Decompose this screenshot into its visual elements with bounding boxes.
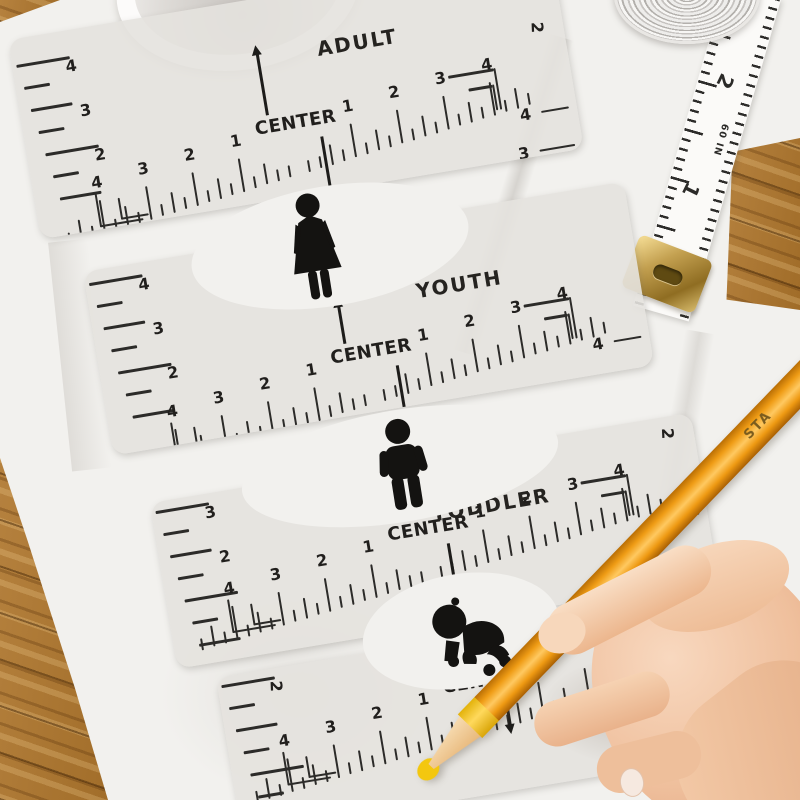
scale-number: 2 bbox=[462, 311, 476, 332]
tick-mark bbox=[554, 521, 560, 542]
tick-mark bbox=[528, 516, 536, 550]
tick-mark bbox=[371, 755, 375, 767]
tick-mark bbox=[52, 171, 78, 178]
product-photo-tshirt-ruler-scene: 2 60 IN 1 bbox=[0, 0, 800, 800]
tick-mark bbox=[328, 144, 334, 165]
tick-mark bbox=[349, 124, 357, 158]
clip-slot bbox=[651, 262, 684, 287]
tick-mark bbox=[170, 548, 212, 557]
scale-number: 2 bbox=[258, 373, 272, 394]
tick-mark bbox=[193, 426, 199, 448]
tick-mark bbox=[613, 513, 617, 525]
scale-number: 2 bbox=[315, 550, 329, 571]
tick-mark bbox=[305, 412, 309, 424]
tick-mark bbox=[267, 401, 275, 435]
tick-mark bbox=[457, 114, 461, 126]
tick-mark bbox=[434, 121, 438, 133]
tick-mark bbox=[191, 172, 199, 206]
scale-number: 3 bbox=[324, 716, 338, 737]
tick-mark bbox=[229, 703, 255, 710]
tick-mark bbox=[579, 329, 583, 341]
tick-mark bbox=[199, 435, 205, 456]
tick-mark bbox=[404, 736, 410, 757]
scale-number: 2 bbox=[93, 144, 107, 165]
scale-number: 3 bbox=[433, 68, 447, 89]
tick-mark bbox=[529, 707, 533, 719]
tick-mark bbox=[103, 320, 145, 329]
tick-mark bbox=[89, 274, 143, 285]
tick-mark bbox=[404, 373, 410, 394]
tick-mark bbox=[189, 447, 193, 455]
tick-mark bbox=[303, 598, 309, 619]
scale-number: 2 bbox=[266, 680, 285, 692]
tick-mark bbox=[590, 520, 594, 532]
scale-number: 2 bbox=[658, 428, 677, 440]
tick-mark bbox=[23, 83, 49, 90]
tick-mark bbox=[482, 530, 490, 564]
tick-mark bbox=[206, 190, 210, 202]
tick-mark bbox=[45, 144, 99, 155]
tick-mark bbox=[236, 433, 240, 445]
scale-number: 3 bbox=[211, 387, 225, 408]
tick-mark bbox=[316, 603, 320, 615]
tick-mark bbox=[170, 192, 176, 213]
tick-mark bbox=[250, 765, 304, 776]
wood-table-left bbox=[0, 440, 120, 800]
tick-mark bbox=[250, 603, 256, 625]
center-label: CENTER bbox=[329, 334, 413, 368]
tick-mark bbox=[155, 502, 209, 513]
tick-mark bbox=[293, 610, 297, 622]
tick-mark bbox=[38, 127, 64, 134]
scale-number: 4 bbox=[277, 731, 291, 752]
scale-number: 2 bbox=[370, 702, 384, 723]
tick-mark bbox=[288, 166, 292, 178]
scale-number: 3 bbox=[268, 564, 282, 585]
scale-number: 3 bbox=[136, 158, 150, 179]
tick-mark bbox=[349, 584, 355, 605]
tick-mark bbox=[612, 373, 648, 381]
scale-number: 1 bbox=[361, 536, 375, 557]
tick-mark bbox=[305, 756, 311, 778]
tick-mark bbox=[411, 128, 415, 140]
tick-mark bbox=[396, 110, 404, 144]
tick-mark bbox=[192, 617, 218, 624]
ruler-size-label: ADULT bbox=[315, 24, 399, 61]
tick-mark bbox=[91, 225, 95, 237]
tick-mark bbox=[636, 506, 640, 518]
tick-mark bbox=[388, 135, 392, 147]
center-up-arrow-icon bbox=[337, 306, 346, 344]
scale-number: 3 bbox=[79, 100, 93, 121]
tick-mark bbox=[539, 144, 575, 152]
center-up-arrow-icon bbox=[256, 54, 269, 116]
tick-mark bbox=[614, 335, 642, 342]
scale-number: 2 bbox=[387, 82, 401, 103]
tick-mark bbox=[533, 343, 537, 355]
tick-mark bbox=[567, 527, 571, 539]
tick-mark bbox=[351, 398, 355, 410]
tick-mark bbox=[370, 564, 378, 598]
tick-mark bbox=[125, 389, 151, 396]
tick-mark bbox=[394, 748, 398, 760]
scale-number: 1 bbox=[416, 325, 430, 346]
tick-mark bbox=[527, 93, 531, 105]
tick-mark bbox=[602, 322, 606, 334]
scale-number: 1 bbox=[229, 130, 243, 151]
tick-mark bbox=[230, 183, 234, 195]
tick-mark bbox=[323, 578, 331, 612]
tick-mark bbox=[486, 357, 490, 369]
tick-mark bbox=[450, 359, 456, 380]
scale-number: 3 bbox=[151, 318, 165, 339]
tick-mark bbox=[362, 589, 366, 601]
wood-table-right bbox=[725, 138, 800, 310]
tick-mark bbox=[237, 158, 245, 192]
tick-mark bbox=[543, 330, 549, 351]
tick-mark bbox=[318, 156, 322, 168]
tick-mark bbox=[282, 419, 286, 431]
tick-mark bbox=[338, 393, 344, 414]
tick-mark bbox=[541, 106, 569, 113]
tick-mark bbox=[183, 197, 187, 209]
tick-mark bbox=[497, 548, 501, 560]
tick-mark bbox=[507, 535, 513, 556]
tick-mark bbox=[199, 637, 241, 646]
tick-mark bbox=[243, 747, 269, 754]
tick-mark bbox=[375, 130, 381, 151]
scale-number: 2 bbox=[218, 546, 232, 567]
scale-number: 1 bbox=[341, 96, 355, 117]
tick-mark bbox=[68, 232, 72, 239]
tick-mark bbox=[497, 344, 503, 365]
scale-number: 3 bbox=[509, 297, 523, 318]
tick-mark bbox=[118, 363, 172, 374]
tick-mark bbox=[328, 405, 332, 417]
tick-mark bbox=[480, 107, 484, 119]
tick-mark bbox=[467, 102, 473, 123]
tick-mark bbox=[118, 197, 124, 219]
scale-number: 3 bbox=[517, 143, 531, 164]
tick-mark bbox=[461, 550, 467, 571]
tick-mark bbox=[292, 407, 298, 428]
tick-mark bbox=[276, 169, 280, 181]
tick-mark bbox=[313, 387, 321, 421]
scale-number: 4 bbox=[518, 104, 532, 125]
tick-mark bbox=[471, 339, 479, 373]
tick-mark bbox=[342, 149, 346, 161]
tick-mark bbox=[111, 345, 137, 352]
tick-mark bbox=[217, 178, 223, 199]
tick-mark bbox=[269, 617, 273, 629]
tick-mark bbox=[307, 160, 311, 172]
tick-mark bbox=[417, 378, 421, 390]
tick-mark bbox=[394, 385, 398, 397]
tick-mark bbox=[163, 529, 189, 536]
tick-mark bbox=[440, 371, 444, 383]
tick-mark bbox=[516, 702, 522, 723]
scale-number: 4 bbox=[222, 578, 236, 599]
tick-mark bbox=[463, 364, 467, 376]
scale-number: 4 bbox=[165, 401, 179, 422]
tick-mark bbox=[325, 770, 329, 782]
tick-mark bbox=[379, 730, 387, 764]
tick-mark bbox=[421, 116, 427, 137]
scale-number: 3 bbox=[203, 502, 217, 523]
tick-mark bbox=[212, 440, 216, 452]
scale-number: 2 bbox=[182, 144, 196, 165]
tick-mark bbox=[474, 555, 478, 567]
scale-number: 4 bbox=[64, 56, 78, 77]
scale-number: 4 bbox=[137, 274, 151, 295]
tick-mark bbox=[574, 501, 582, 535]
tick-mark bbox=[442, 96, 450, 130]
tick-mark bbox=[385, 582, 389, 594]
tick-mark bbox=[259, 426, 263, 438]
tick-mark bbox=[246, 421, 252, 442]
scale-number: 3 bbox=[589, 373, 603, 394]
tick-mark bbox=[510, 350, 514, 362]
scale-number: 4 bbox=[90, 172, 104, 193]
scale-number: 1 bbox=[416, 688, 430, 709]
tick-mark bbox=[504, 100, 508, 112]
tick-mark bbox=[600, 507, 606, 528]
scale-number: 2 bbox=[166, 362, 180, 383]
tick-mark bbox=[253, 176, 257, 188]
tick-mark bbox=[382, 389, 386, 401]
tick-mark bbox=[16, 56, 70, 67]
tick-mark bbox=[160, 204, 164, 216]
tick-mark bbox=[220, 415, 228, 449]
scale-number: 1 bbox=[304, 359, 318, 380]
tick-mark bbox=[263, 164, 269, 185]
tick-mark bbox=[425, 353, 433, 387]
wood-table-topleft bbox=[0, 0, 60, 22]
tick-mark bbox=[517, 325, 525, 359]
tick-mark bbox=[520, 541, 524, 553]
tick-mark bbox=[96, 301, 122, 308]
tick-mark bbox=[365, 142, 369, 154]
tick-mark bbox=[78, 220, 84, 239]
tick-mark bbox=[348, 763, 352, 775]
tick-mark bbox=[166, 454, 170, 455]
tick-mark bbox=[196, 442, 224, 449]
tick-mark bbox=[395, 569, 401, 590]
tick-mark bbox=[556, 336, 560, 348]
tick-mark bbox=[236, 723, 278, 732]
scale-number: 3 bbox=[566, 474, 580, 495]
scale-number: 2 bbox=[527, 22, 546, 34]
tick-mark bbox=[358, 750, 364, 771]
tick-mark bbox=[339, 596, 343, 608]
tick-mark bbox=[137, 211, 141, 223]
scale-number: 4 bbox=[591, 334, 605, 355]
tick-mark bbox=[363, 394, 367, 406]
tick-mark bbox=[153, 449, 159, 456]
tick-mark bbox=[177, 573, 203, 580]
tick-mark bbox=[31, 102, 73, 111]
tick-mark bbox=[175, 447, 219, 456]
tick-mark bbox=[543, 534, 547, 546]
